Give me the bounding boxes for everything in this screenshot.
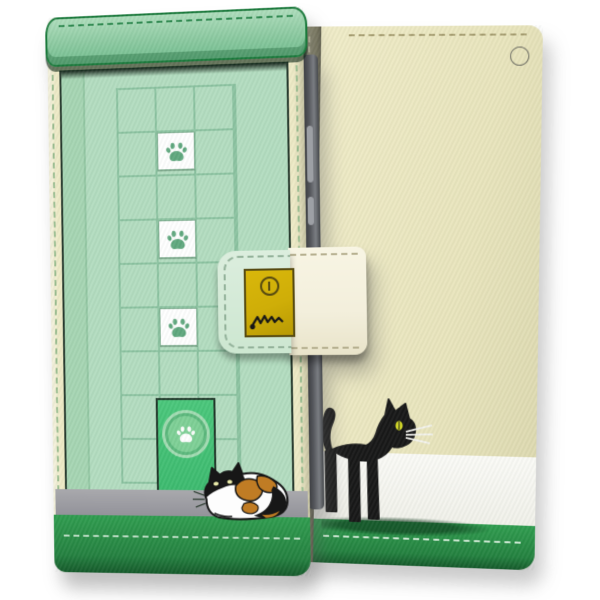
paw-tile bbox=[158, 220, 196, 259]
stitch-line bbox=[64, 535, 300, 540]
cover-top-band bbox=[45, 6, 308, 67]
black-cat-illustration bbox=[311, 390, 447, 541]
cat-squiggle-icon bbox=[248, 310, 285, 333]
paw-print-icon bbox=[167, 315, 190, 338]
stitch-line bbox=[59, 15, 293, 27]
clasp-snap-plate bbox=[244, 268, 296, 337]
calico-cat-illustration bbox=[192, 456, 292, 519]
door-paw-medallion bbox=[165, 413, 207, 455]
snap-button-icon bbox=[259, 276, 279, 295]
paw-tile bbox=[157, 131, 195, 170]
phone-volume-button bbox=[307, 126, 314, 183]
paw-print-icon bbox=[164, 139, 187, 163]
paw-print-icon bbox=[166, 227, 189, 250]
paw-print-icon bbox=[176, 424, 196, 444]
product-photo bbox=[0, 0, 600, 600]
case-front-view bbox=[47, 6, 311, 576]
strap-eyelet bbox=[510, 47, 530, 66]
black-cat-icon bbox=[311, 390, 447, 541]
paw-tile bbox=[159, 308, 197, 346]
clasp-strap-band bbox=[288, 246, 368, 355]
phone-power-button bbox=[308, 197, 315, 226]
bottom-green-band bbox=[54, 515, 311, 577]
wall-shade bbox=[61, 72, 90, 492]
calico-cat-icon bbox=[192, 456, 292, 522]
stitch-line bbox=[349, 33, 527, 36]
